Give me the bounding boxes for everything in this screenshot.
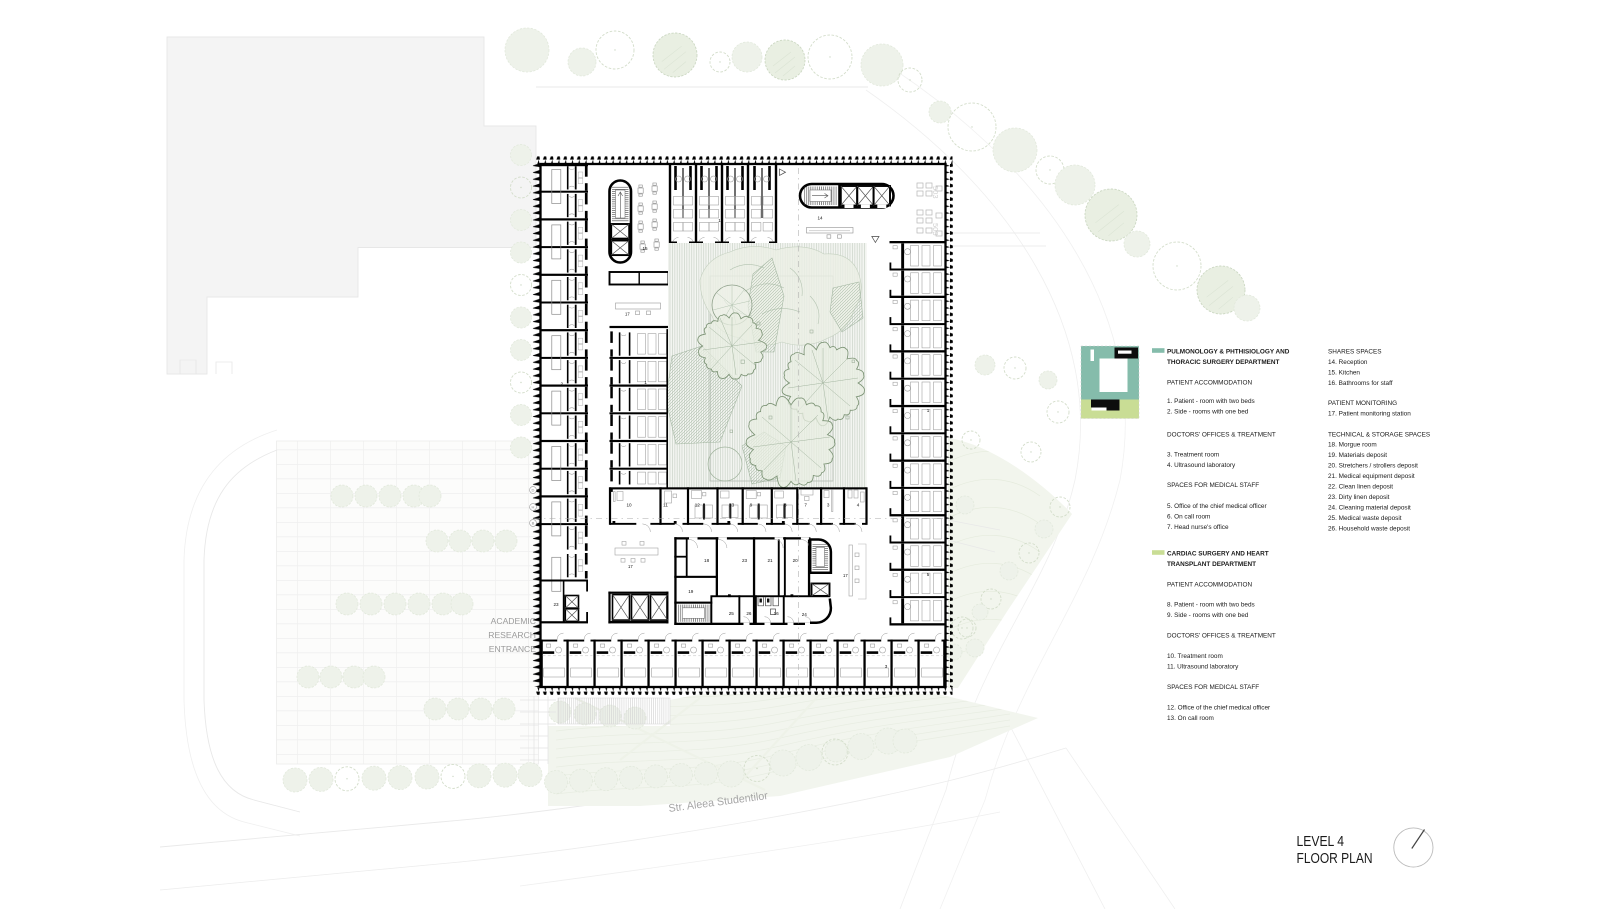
svg-text:24. Cleaning material deposit: 24. Cleaning material deposit [1328, 505, 1411, 512]
svg-text:3: 3 [827, 503, 830, 508]
svg-text:THORACIC SURGERY DEPARTMENT: THORACIC SURGERY DEPARTMENT [1167, 359, 1280, 366]
svg-text:13. On call room: 13. On call room [1167, 715, 1214, 722]
svg-text:DOCTORS' OFFICES & TREATMENT: DOCTORS' OFFICES & TREATMENT [1167, 633, 1276, 640]
svg-text:D: D [532, 488, 535, 493]
svg-text:19: 19 [688, 589, 694, 594]
svg-text:25. Medical waste deposit: 25. Medical waste deposit [1328, 515, 1402, 522]
svg-text:14. Reception: 14. Reception [1328, 359, 1368, 366]
svg-text:503: 503 [931, 186, 940, 199]
svg-text:SPACES FOR MEDICAL STAFF: SPACES FOR MEDICAL STAFF [1167, 482, 1259, 489]
svg-text:2. Side - rooms with one bed: 2. Side - rooms with one bed [1167, 409, 1249, 416]
svg-text:PATIENT MONITORING: PATIENT MONITORING [1328, 400, 1397, 407]
svg-text:13: 13 [729, 503, 735, 508]
svg-text:15: 15 [642, 246, 648, 251]
svg-text:26. Household waste deposit: 26. Household waste deposit [1328, 526, 1410, 533]
svg-text:17: 17 [843, 573, 848, 578]
svg-text:19. Materials deposit: 19. Materials deposit [1328, 452, 1387, 459]
svg-text:4: 4 [857, 503, 860, 508]
svg-text:1. Patient - room with two bed: 1. Patient - room with two beds [1167, 398, 1255, 405]
svg-text:10: 10 [626, 503, 632, 508]
svg-text:24: 24 [802, 612, 808, 617]
svg-text:7: 7 [804, 503, 807, 508]
svg-text:23. Dirty linen deposit: 23. Dirty linen deposit [1328, 494, 1390, 501]
svg-text:12. Office of the chief medica: 12. Office of the chief medical officer [1167, 705, 1271, 712]
svg-text:B: B [532, 521, 535, 526]
svg-text:CARDIAC SURGERY AND HEART: CARDIAC SURGERY AND HEART [1167, 551, 1269, 558]
svg-text:7. Head nurse's office: 7. Head nurse's office [1167, 524, 1229, 531]
svg-text:503: 503 [931, 223, 940, 236]
svg-text:18. Morgue room: 18. Morgue room [1328, 442, 1377, 449]
svg-text:SPACES FOR MEDICAL STAFF: SPACES FOR MEDICAL STAFF [1167, 684, 1259, 691]
svg-text:23: 23 [742, 558, 748, 563]
svg-text:6. On call room: 6. On call room [1167, 514, 1210, 521]
svg-text:PULMONOLOGY & PHTHISIOLOGY AND: PULMONOLOGY & PHTHISIOLOGY AND [1167, 349, 1290, 356]
svg-text:TRANSPLANT DEPARTMENT: TRANSPLANT DEPARTMENT [1167, 561, 1256, 568]
svg-text:PATIENT ACCOMMODATION: PATIENT ACCOMMODATION [1167, 582, 1252, 589]
svg-text:9. Side - rooms with one bed: 9. Side - rooms with one bed [1167, 612, 1249, 619]
svg-text:FLOOR PLAN: FLOOR PLAN [1297, 850, 1373, 867]
svg-text:18: 18 [704, 558, 710, 563]
svg-text:H: H [532, 505, 535, 510]
svg-text:SHARES SPACES: SHARES SPACES [1328, 349, 1382, 356]
svg-text:17: 17 [625, 312, 630, 317]
svg-text:25: 25 [729, 611, 735, 616]
svg-text:23: 23 [553, 602, 559, 607]
svg-text:4. Ultrasound laboratory: 4. Ultrasound laboratory [1167, 462, 1236, 469]
svg-text:15. Kitchen: 15. Kitchen [1328, 370, 1360, 377]
svg-text:26: 26 [746, 611, 752, 616]
svg-text:3. Treatment room: 3. Treatment room [1167, 452, 1219, 459]
svg-text:12: 12 [695, 503, 701, 508]
svg-text:16. Bathrooms for staff: 16. Bathrooms for staff [1328, 380, 1393, 387]
svg-text:14: 14 [817, 216, 823, 221]
svg-text:ENTRANCE: ENTRANCE [489, 644, 537, 654]
svg-text:17: 17 [628, 564, 633, 569]
svg-text:11: 11 [663, 503, 668, 508]
svg-text:8: 8 [784, 503, 787, 508]
svg-text:17. Patient monitoring station: 17. Patient monitoring station [1328, 411, 1411, 418]
svg-text:1: 1 [644, 380, 647, 385]
svg-text:9: 9 [750, 503, 753, 508]
svg-text:10. Treatment room: 10. Treatment room [1167, 653, 1223, 660]
svg-text:22. Clean linen deposit: 22. Clean linen deposit [1328, 484, 1393, 491]
svg-text:16: 16 [774, 611, 780, 616]
svg-text:5. Office of the chief medical: 5. Office of the chief medical officer [1167, 503, 1267, 510]
svg-text:1: 1 [927, 408, 930, 413]
svg-text:21. Medical equipment deposit: 21. Medical equipment deposit [1328, 473, 1415, 480]
svg-text:PATIENT ACCOMMODATION: PATIENT ACCOMMODATION [1167, 380, 1252, 387]
svg-text:2: 2 [561, 382, 564, 387]
svg-text:20: 20 [793, 558, 799, 563]
svg-text:8. Patient - room with two bed: 8. Patient - room with two beds [1167, 602, 1255, 609]
svg-text:TECHNICAL & STORAGE SPACES: TECHNICAL & STORAGE SPACES [1328, 432, 1430, 439]
svg-text:3: 3 [885, 664, 888, 669]
svg-text:DOCTORS' OFFICES & TREATMENT: DOCTORS' OFFICES & TREATMENT [1167, 432, 1276, 439]
svg-text:20. Stretchers / strollers dep: 20. Stretchers / strollers deposit [1328, 463, 1418, 470]
svg-text:21: 21 [767, 558, 773, 563]
svg-text:11. Ultrasound laboratory: 11. Ultrasound laboratory [1167, 664, 1239, 671]
svg-text:ACADEMIC: ACADEMIC [491, 616, 536, 626]
svg-text:RESEARCH: RESEARCH [488, 630, 536, 640]
svg-text:1: 1 [718, 218, 721, 223]
svg-text:5: 5 [927, 572, 930, 577]
svg-text:LEVEL 4: LEVEL 4 [1297, 833, 1345, 850]
